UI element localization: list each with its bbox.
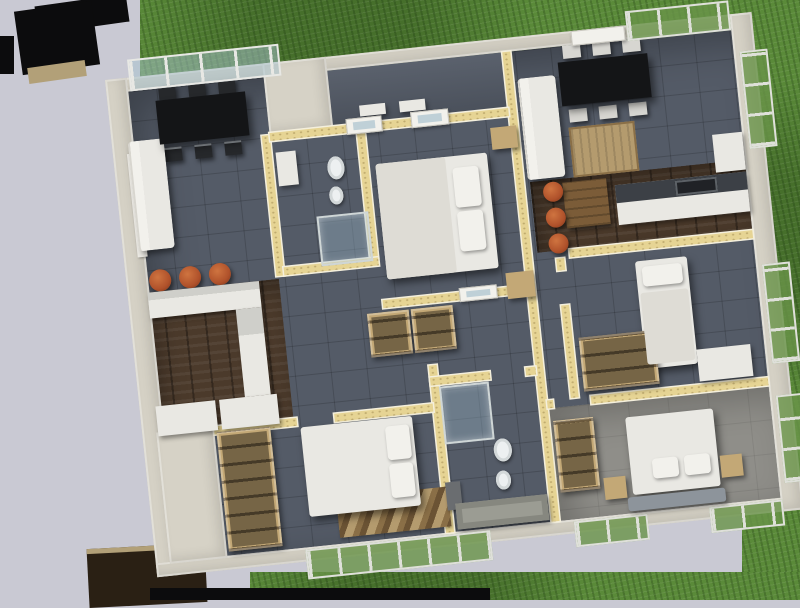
chair-right-4 xyxy=(569,108,588,123)
shower-bath-bottom xyxy=(439,382,495,445)
wall-bath2-top-b xyxy=(525,367,536,376)
pillow-center-1 xyxy=(452,165,482,207)
nightstand-center-2 xyxy=(505,270,536,299)
chair-right-1 xyxy=(562,44,581,59)
chair-left-4 xyxy=(164,146,182,162)
pillow-br-1 xyxy=(652,456,680,479)
chair-right-5 xyxy=(598,105,617,120)
building xyxy=(105,12,800,577)
rug-right-living xyxy=(569,121,640,178)
render-stage xyxy=(0,0,800,600)
duvet-bed-center xyxy=(375,157,457,280)
wall-corridor-right-a xyxy=(556,258,565,271)
wardrobe-bottom-left-open xyxy=(221,431,278,547)
hall-wardrobe-1-open xyxy=(371,314,409,353)
roof-fragment-left-edge xyxy=(0,36,14,74)
desk-right-bedroom xyxy=(696,344,753,381)
entry-door-2-glass xyxy=(417,113,442,123)
open-shelf-bottom-right-open xyxy=(557,421,596,488)
chair-left-5 xyxy=(194,143,212,159)
nightstand-br-2 xyxy=(720,454,744,478)
kitchen-cabinet-left-2 xyxy=(219,394,280,430)
duvet-single xyxy=(640,288,695,365)
open-shelf-bottom-right xyxy=(553,417,600,493)
hall-wardrobe-1 xyxy=(367,310,413,358)
washbasin-bath-left xyxy=(276,150,299,186)
nightstand-br-1 xyxy=(603,476,627,500)
chair-left-6 xyxy=(224,140,242,156)
pillow-center-2 xyxy=(457,209,487,251)
roof-fragment-bottom-sliver xyxy=(150,588,490,600)
entry-door-1-glass xyxy=(353,120,376,130)
dining-table-right xyxy=(558,53,652,106)
hall-door-glass xyxy=(466,289,490,297)
pillow-br-2 xyxy=(683,453,711,476)
hall-wardrobe-2 xyxy=(411,305,457,353)
nightstand-center-1 xyxy=(490,125,518,150)
chair-right-6 xyxy=(628,102,647,117)
wall-bedrooms-right-divider-a xyxy=(547,400,554,409)
pillow-single xyxy=(641,263,683,287)
pillow-bl-2 xyxy=(389,462,416,498)
pillow-bl-1 xyxy=(385,424,412,460)
double-bed-bottom-right xyxy=(625,408,721,495)
kitchen-cabinet-left-1 xyxy=(155,400,218,436)
breakfast-table-right xyxy=(562,178,611,228)
shower-bath-left xyxy=(316,211,373,266)
dining-table-left xyxy=(155,91,249,144)
hall-wardrobe-2-open xyxy=(415,309,453,348)
tall-cabinet-right xyxy=(712,132,746,173)
